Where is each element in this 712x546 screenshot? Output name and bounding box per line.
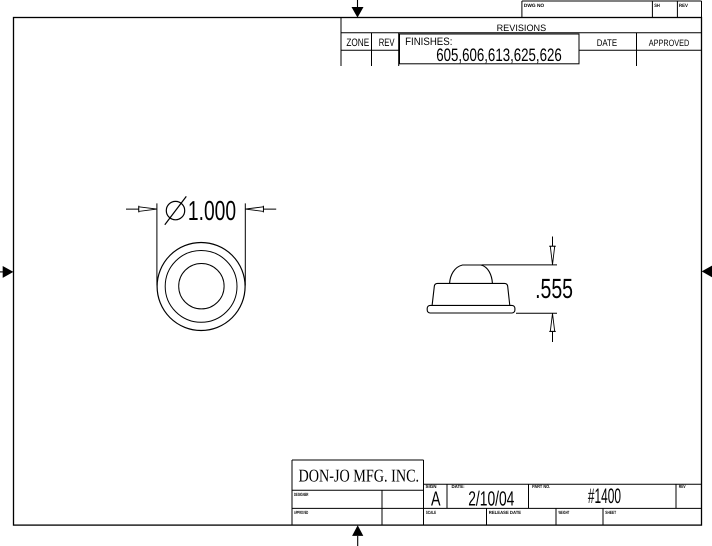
svg-text:#1400: #1400	[588, 485, 621, 508]
svg-text:SHEET: SHEET	[605, 510, 616, 515]
svg-text:REVISIONS: REVISIONS	[497, 23, 547, 33]
svg-text:SCALE: SCALE	[426, 510, 436, 515]
svg-text:DESIGNER: DESIGNER	[294, 492, 309, 497]
svg-text:RELEASE DATE: RELEASE DATE	[489, 510, 521, 515]
svg-text:1.000: 1.000	[188, 195, 236, 226]
svg-text:SH: SH	[654, 3, 660, 9]
svg-text:REV: REV	[679, 484, 686, 489]
svg-text:DWG NO: DWG NO	[524, 3, 545, 9]
svg-text:WEIGHT: WEIGHT	[559, 510, 570, 515]
svg-text:REV: REV	[379, 37, 395, 49]
svg-text:A: A	[431, 488, 441, 510]
svg-text:2/10/04: 2/10/04	[468, 487, 514, 510]
svg-text:PART NO.: PART NO.	[532, 484, 550, 489]
svg-text:.555: .555	[535, 273, 573, 304]
svg-text:APPROVED: APPROVED	[294, 510, 309, 515]
svg-text:ZONE: ZONE	[346, 37, 369, 49]
svg-text:605,606,613,625,626: 605,606,613,625,626	[436, 45, 561, 65]
svg-text:APPROVED: APPROVED	[649, 38, 690, 48]
svg-text:DON-JO MFG. INC.: DON-JO MFG. INC.	[299, 465, 420, 485]
svg-text:DATE:: DATE:	[452, 484, 466, 489]
svg-text:DATE: DATE	[597, 38, 617, 49]
svg-text:REV: REV	[679, 3, 689, 9]
